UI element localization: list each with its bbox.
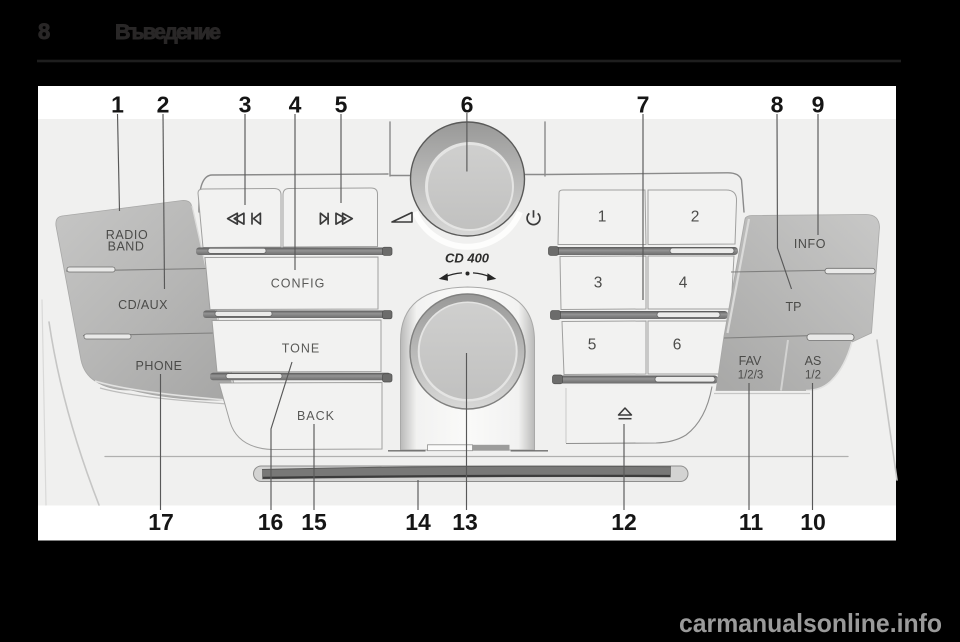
svg-text:5: 5 [588,337,597,354]
svg-text:1: 1 [111,92,124,118]
svg-text:3: 3 [239,92,252,118]
svg-text:CD 400: CD 400 [445,251,490,266]
svg-text:2: 2 [691,209,700,226]
svg-text:16: 16 [258,509,284,535]
svg-text:1/2: 1/2 [805,370,821,382]
svg-text:2: 2 [157,92,170,118]
svg-text:5: 5 [335,92,348,118]
svg-text:8: 8 [771,92,784,118]
svg-text:BAND: BAND [108,240,145,254]
svg-text:FAV: FAV [739,354,762,368]
svg-text:9: 9 [812,92,825,118]
svg-text:PHONE: PHONE [136,359,183,373]
svg-text:AS: AS [805,354,822,368]
svg-text:BACK: BACK [297,409,335,423]
svg-text:CD/AUX: CD/AUX [118,298,168,312]
svg-text:14: 14 [405,509,431,535]
svg-text:4: 4 [679,275,688,292]
svg-text:7: 7 [637,92,650,118]
svg-text:CONFIG: CONFIG [271,277,326,291]
svg-text:10: 10 [800,509,826,535]
svg-text:TONE: TONE [282,342,321,356]
svg-text:15: 15 [301,509,327,535]
svg-text:4: 4 [289,92,302,118]
svg-text:17: 17 [148,509,174,535]
svg-text:INFO: INFO [794,237,826,251]
svg-text:8: 8 [38,19,50,44]
svg-text:3: 3 [594,275,603,292]
svg-text:6: 6 [673,337,682,354]
svg-text:13: 13 [452,509,478,535]
svg-text:6: 6 [461,92,474,118]
svg-text:Въведение: Въведение [115,20,221,44]
svg-text:1: 1 [598,209,607,226]
svg-text:12: 12 [611,509,637,535]
svg-text:carmanualsonline.info: carmanualsonline.info [679,608,942,638]
svg-text:TP: TP [786,300,802,314]
svg-text:1/2/3: 1/2/3 [738,370,764,382]
svg-text:11: 11 [739,509,764,535]
